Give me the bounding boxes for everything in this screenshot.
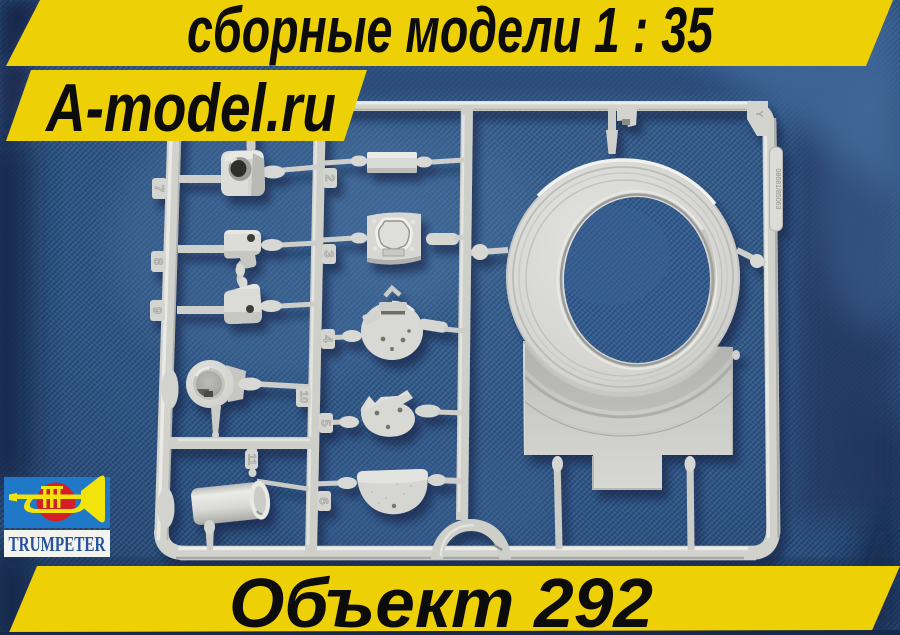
svg-text:9: 9 (150, 307, 165, 314)
svg-text:10: 10 (298, 391, 310, 403)
svg-text:6: 6 (317, 497, 332, 504)
svg-text:4: 4 (321, 335, 336, 343)
svg-text:A-model.ru: A-model.ru (44, 70, 336, 146)
svg-text:сборные модели 1 : 35: сборные модели 1 : 35 (187, 0, 714, 66)
svg-text:11: 11 (246, 454, 258, 466)
svg-text:08681/85063: 08681/85063 (774, 169, 781, 210)
svg-text:Объект 292: Объект 292 (229, 564, 653, 635)
svg-text:Y: Y (753, 111, 764, 118)
svg-text:7: 7 (152, 185, 167, 192)
svg-text:8: 8 (151, 258, 166, 265)
svg-text:TRUMPETER: TRUMPETER (9, 532, 107, 556)
svg-text:2: 2 (323, 174, 338, 181)
svg-text:5: 5 (319, 419, 334, 426)
svg-text:3: 3 (322, 250, 337, 257)
